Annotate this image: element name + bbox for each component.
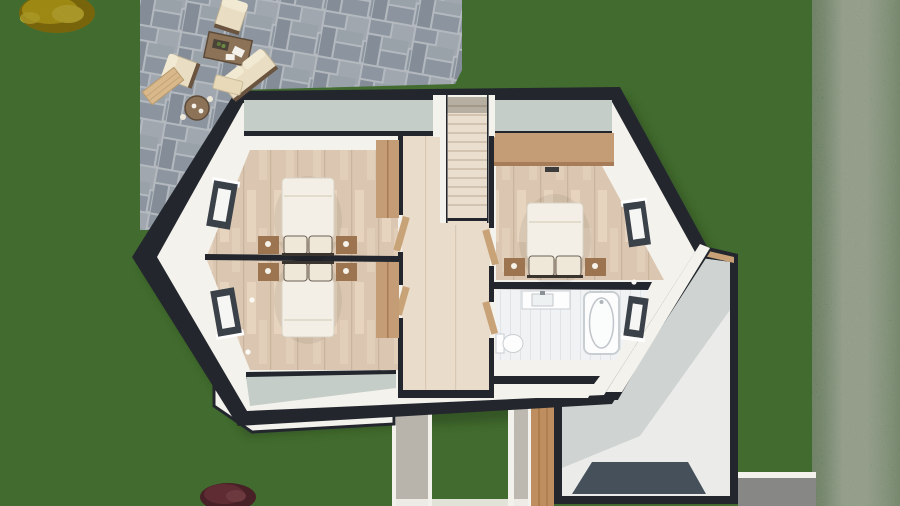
table-paper (226, 54, 235, 60)
gravel-texture (738, 478, 816, 506)
side-stool (207, 96, 213, 102)
side-table-cup (192, 104, 197, 109)
house (132, 87, 710, 426)
hall-end-wall (398, 390, 494, 398)
headboard (282, 261, 334, 264)
path-curb (508, 398, 514, 506)
bedside-lamp (265, 268, 271, 274)
bedside-lamp (343, 241, 349, 247)
hall-wall-right (489, 338, 494, 392)
pillow (309, 263, 332, 281)
floorplan-render (0, 0, 900, 506)
headboard (527, 275, 583, 278)
toilet (496, 334, 523, 353)
hall-wall-right (489, 136, 494, 228)
sink-basin (532, 294, 553, 306)
bathroom-wall-top (492, 282, 652, 290)
bottom-curb (392, 499, 528, 506)
side-stool (180, 114, 186, 120)
bedside-lamp (265, 241, 271, 247)
stair-shadow-top (448, 97, 487, 113)
duvet (527, 203, 583, 259)
front-door-wood (531, 398, 554, 506)
gravel-curb (738, 472, 816, 478)
headboard (282, 253, 334, 256)
tub-basin (590, 298, 614, 348)
gravel-side-texture (514, 398, 528, 506)
wardrobe-band-edge (494, 162, 614, 166)
front-entrance (528, 398, 554, 506)
pillow (284, 263, 307, 281)
floor-clutter (245, 349, 250, 354)
side-table-top (185, 96, 209, 120)
pillow (309, 236, 332, 254)
side-table-cup (199, 109, 204, 114)
staircase (440, 95, 494, 223)
front-door-grain (546, 398, 548, 506)
front-door-grain (538, 398, 540, 506)
door-frame-edge (528, 398, 531, 506)
hedge-texture-dark (812, 0, 900, 506)
pillow (529, 256, 554, 276)
floor-vent (545, 167, 559, 172)
gravel-strip-right (738, 472, 816, 506)
stair-wall-right-edge (487, 95, 489, 223)
bath-bottom-wall-step (488, 384, 596, 398)
stair-wall-left (440, 95, 447, 223)
hall-seam (455, 225, 456, 394)
stair-wall-left-edge (446, 95, 448, 223)
hedge (812, 0, 900, 506)
annex-mat (572, 462, 706, 494)
vanity-sink (522, 291, 570, 309)
bedside-lamp (592, 263, 598, 269)
pillow (556, 256, 581, 276)
wardrobe-seam (387, 140, 389, 218)
scene-canvas (0, 0, 900, 506)
hall-wall-right (489, 266, 494, 302)
faucet (540, 291, 545, 295)
bedside-lamp (511, 263, 517, 269)
bathtub (584, 292, 619, 354)
hall-seam (425, 136, 426, 394)
stair-nosing (448, 218, 487, 221)
duvet (282, 279, 334, 337)
floor-clutter (249, 297, 254, 302)
wardrobe-seam (387, 262, 389, 338)
wall-cap-top (244, 100, 612, 131)
floor-clutter (631, 279, 636, 284)
duvet (282, 178, 334, 238)
wardrobe-band-right (494, 133, 614, 166)
bedside-lamp (343, 268, 349, 274)
pillow (284, 236, 307, 254)
toilet-bowl (503, 335, 523, 353)
tub-drain (600, 300, 604, 304)
